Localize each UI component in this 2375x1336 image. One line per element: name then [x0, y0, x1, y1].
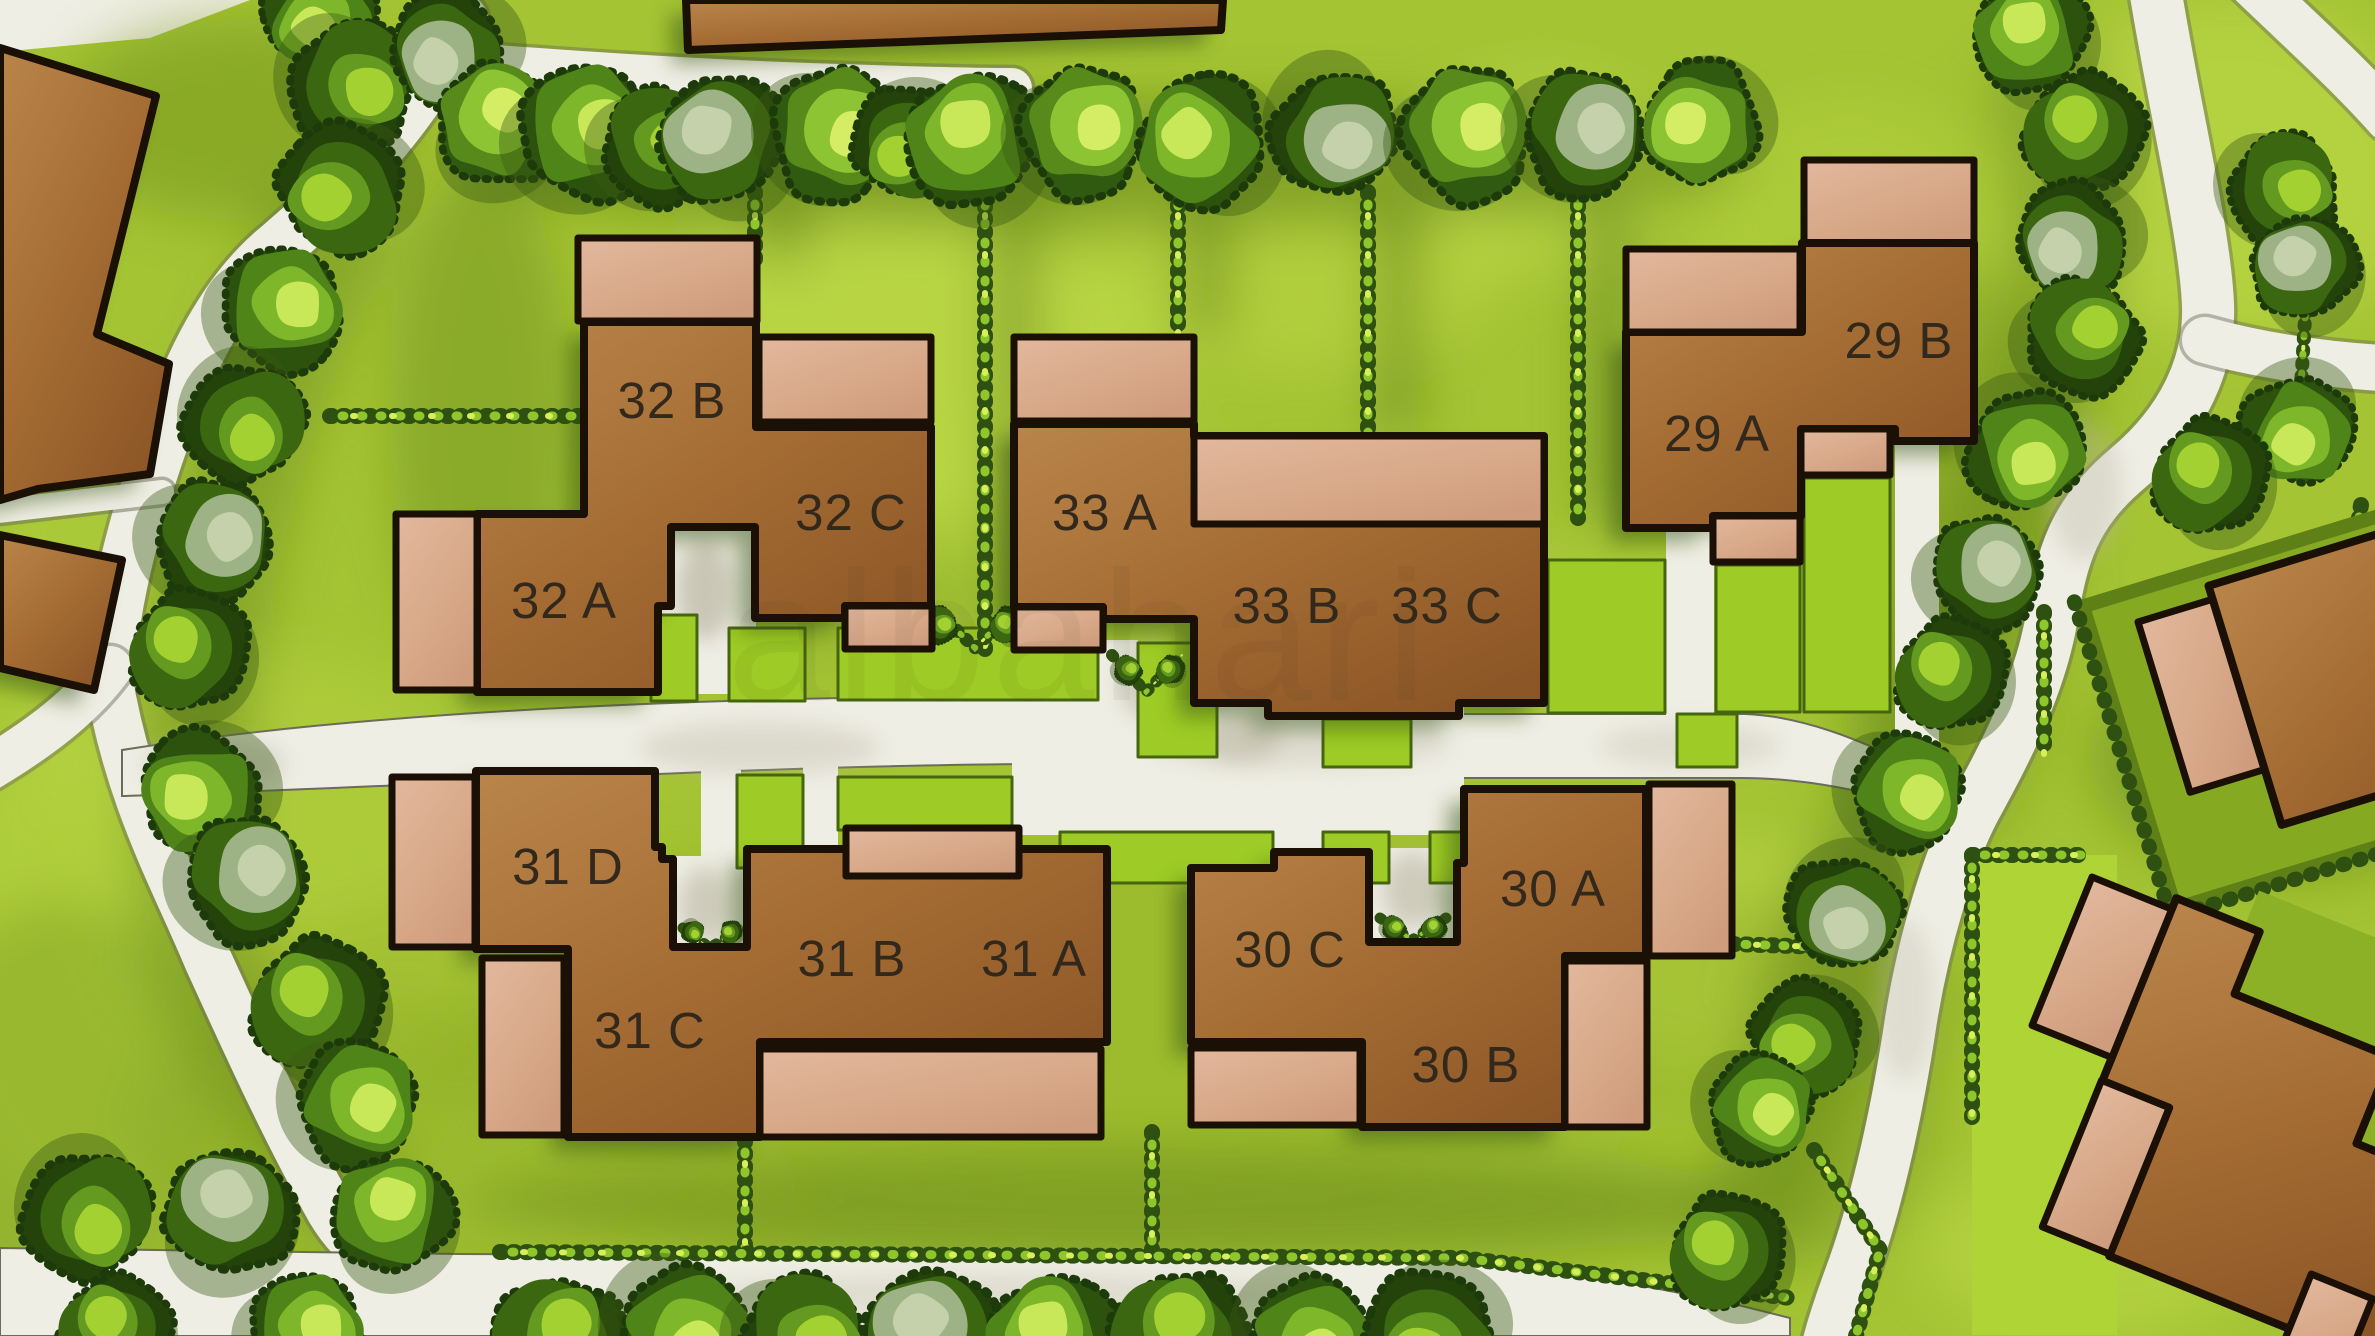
svg-text:30 B: 30 B: [1412, 1036, 1521, 1093]
svg-text:30 C: 30 C: [1234, 921, 1346, 978]
svg-text:32 A: 32 A: [511, 572, 617, 629]
svg-text:31 A: 31 A: [981, 930, 1087, 987]
svg-text:29 B: 29 B: [1845, 312, 1954, 369]
svg-text:32 C: 32 C: [795, 484, 907, 541]
svg-text:albahari: albahari: [727, 534, 1433, 740]
svg-text:32 B: 32 B: [618, 372, 727, 429]
svg-text:30 A: 30 A: [1500, 860, 1606, 917]
svg-text:33 A: 33 A: [1052, 484, 1158, 541]
svg-text:31 C: 31 C: [594, 1002, 706, 1059]
svg-text:31 D: 31 D: [512, 838, 624, 895]
svg-text:29 A: 29 A: [1664, 405, 1770, 462]
svg-text:31 B: 31 B: [798, 930, 907, 987]
